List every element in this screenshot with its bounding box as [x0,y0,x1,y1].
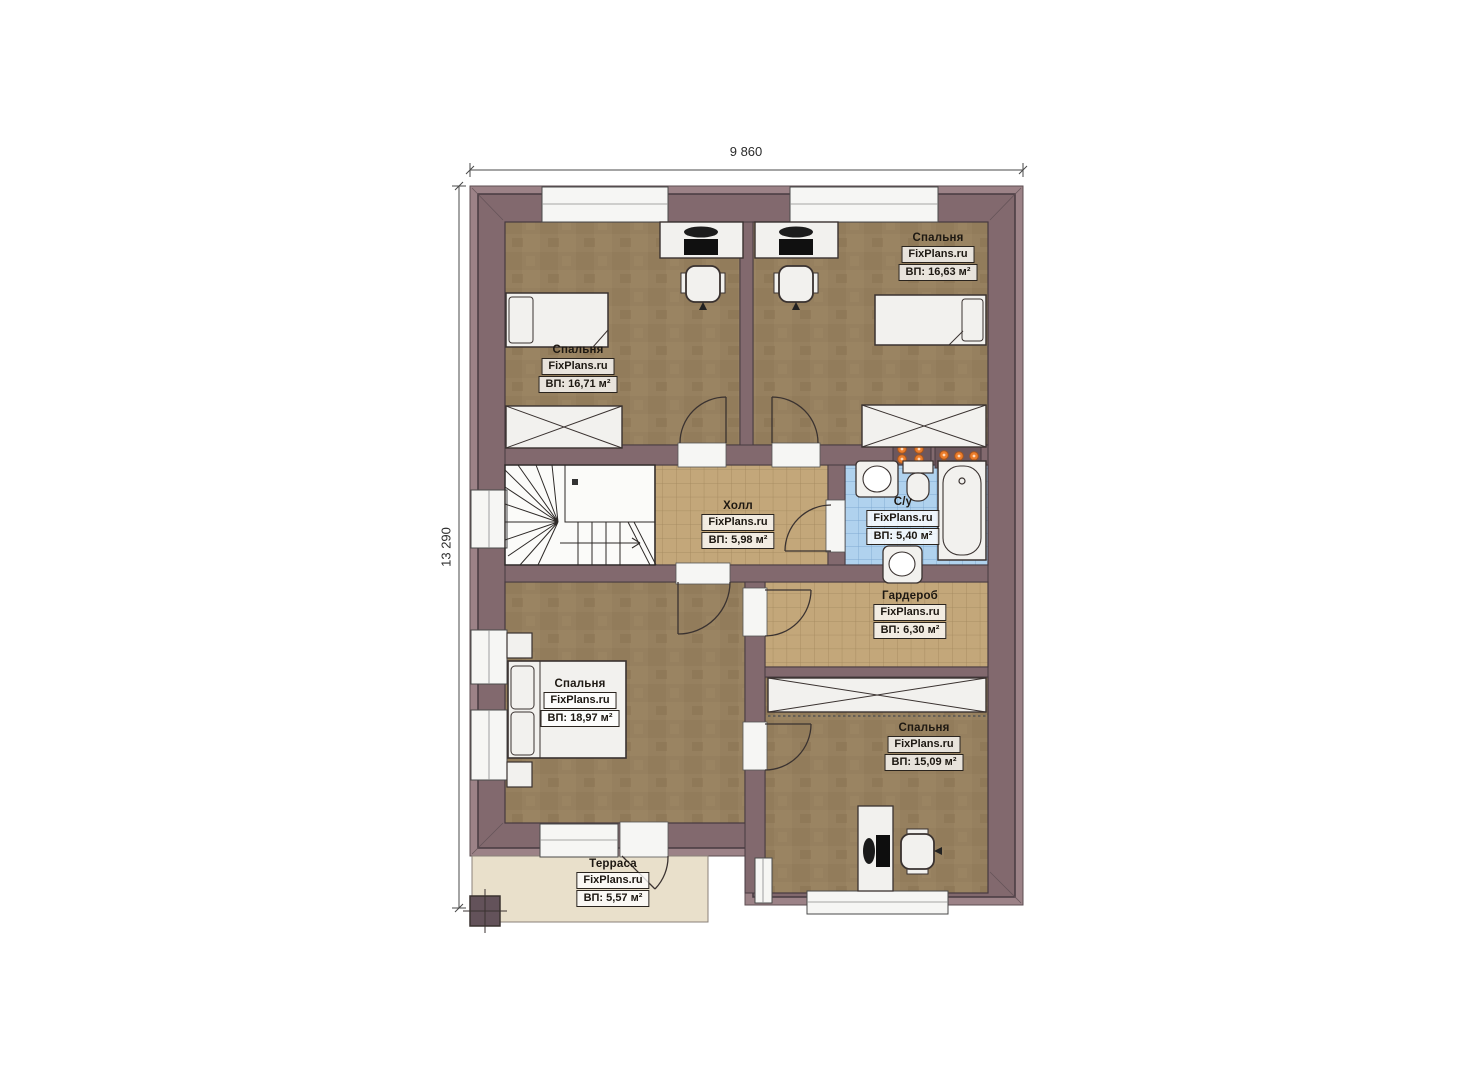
wardrobe-cabinet [862,405,986,447]
room-brand: FixPlans.ru [866,510,939,527]
nightstand [507,762,532,787]
room-brand: FixPlans.ru [541,358,614,375]
window-bottom-left [540,824,618,857]
room-label-bedroom-bottom-left: Спальня FixPlans.ru ВП: 18,97 м² [541,678,620,727]
bathtub [938,461,986,560]
room-label-bedroom-top-right: Спальня FixPlans.ru ВП: 16,63 м² [899,232,978,281]
window-left-1 [471,630,507,684]
room-brand: FixPlans.ru [576,872,649,889]
room-label-bedroom-top-left: Спальня FixPlans.ru ВП: 16,71 м² [539,344,618,393]
room-name: Спальня [912,232,963,244]
room-label-hall: Холл FixPlans.ru ВП: 5,98 м² [701,500,774,549]
room-name: Спальня [898,722,949,734]
room-area: ВП: 5,98 м² [702,532,775,549]
stair-rail-post [572,479,578,485]
room-name: Терраса [589,858,637,870]
sink [856,461,898,497]
window-top-left [542,187,668,222]
floor-plan-page: 9 860 13 290 Спальня FixPlans.ru ВП: 16,… [0,0,1473,1080]
toilet [903,461,933,501]
window-side-small [755,858,772,903]
desk [858,806,893,891]
room-label-bathroom: С/у FixPlans.ru ВП: 5,40 м² [866,496,939,545]
room-name: Спальня [554,678,605,690]
room-brand: FixPlans.ru [887,736,960,753]
dimension-width-label: 9 860 [730,144,763,159]
single-bed [506,293,608,347]
single-bed [875,295,986,345]
window-bottom-right [807,891,948,914]
room-area: ВП: 16,71 м² [539,376,618,393]
room-label-wardrobe: Гардероб FixPlans.ru ВП: 6,30 м² [873,590,946,639]
room-label-terrace: Терраса FixPlans.ru ВП: 5,57 м² [576,858,649,907]
room-area: ВП: 15,09 м² [885,754,964,771]
wardrobe-cabinet [768,678,986,716]
room-name: Гардероб [882,590,938,602]
nightstand [507,633,532,658]
desk [660,222,743,258]
room-name: Спальня [552,344,603,356]
room-area: ВП: 5,57 м² [577,890,650,907]
room-brand: FixPlans.ru [901,246,974,263]
room-brand: FixPlans.ru [873,604,946,621]
room-brand: FixPlans.ru [701,514,774,531]
window-stairs [471,490,507,548]
dimension-height-label: 13 290 [439,527,454,567]
room-name: С/у [894,496,913,508]
room-label-bedroom-bottom-right: Спальня FixPlans.ru ВП: 15,09 м² [885,722,964,771]
room-area: ВП: 16,63 м² [899,264,978,281]
window-top-right [790,187,938,222]
room-area: ВП: 18,97 м² [541,710,620,727]
room-name: Холл [723,500,753,512]
second-sink [883,546,922,583]
room-brand: FixPlans.ru [543,692,616,709]
desk [755,222,838,258]
floor-stairs [505,465,655,565]
room-area: ВП: 5,40 м² [867,528,940,545]
window-left-2 [471,710,507,780]
room-area: ВП: 6,30 м² [874,622,947,639]
wardrobe-cabinet [506,406,622,448]
